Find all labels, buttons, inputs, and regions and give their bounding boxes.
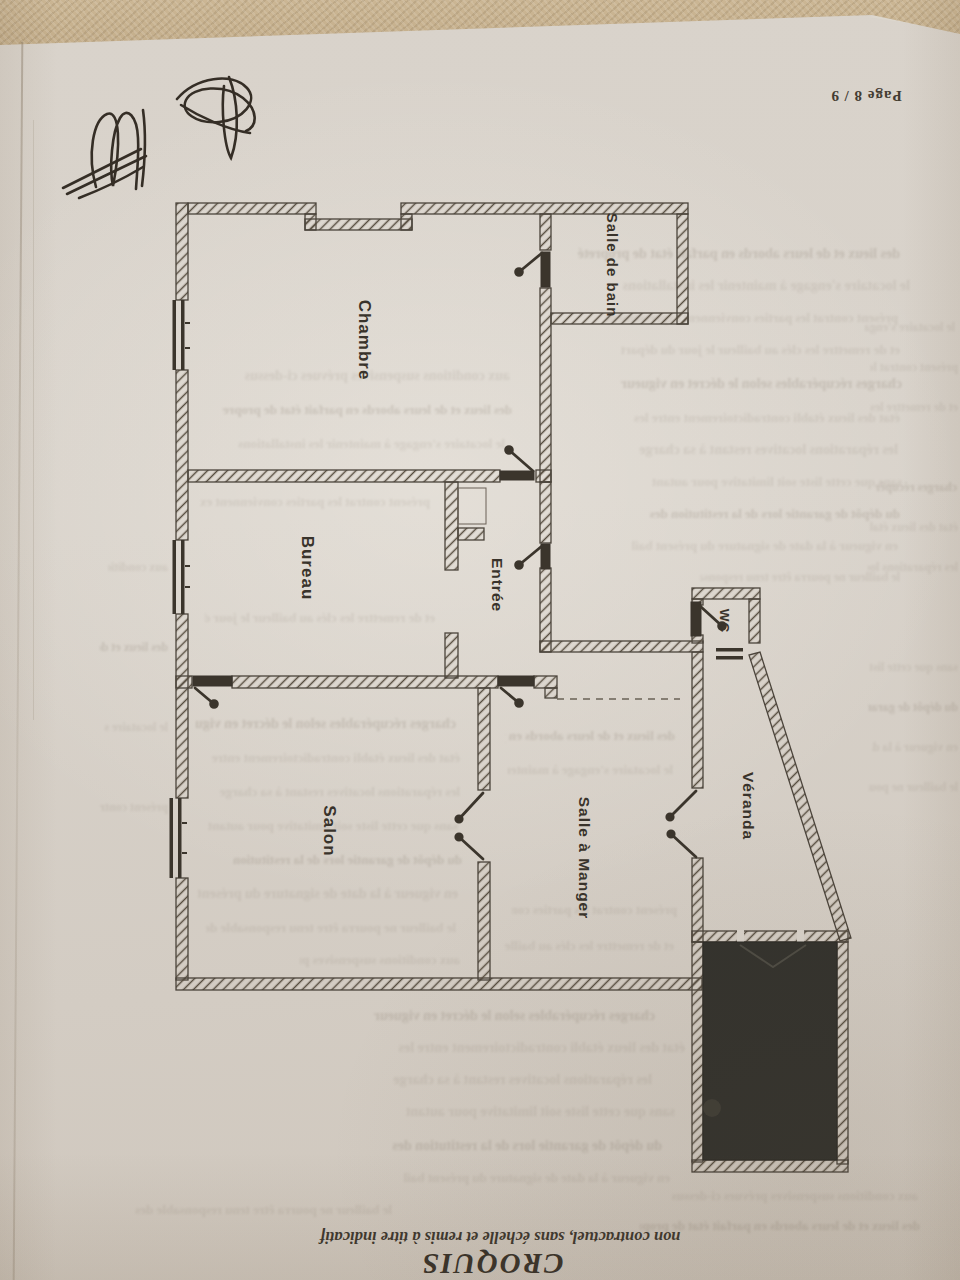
room-label-entree: Entrée — [488, 558, 506, 612]
room-label-chambre: Chambre — [354, 300, 374, 381]
footer-disclaimer: non contractuel, sans échelle et remis à… — [320, 1227, 681, 1247]
paper-crease — [33, 120, 34, 720]
room-label-veranda: Véranda — [739, 772, 757, 840]
room-label-salon: Salon — [319, 805, 339, 856]
room-label-wc: WC — [717, 609, 732, 634]
dark-filled-room — [703, 942, 837, 1160]
room-label-salle-de-bain: Salle de bain — [604, 213, 621, 318]
room-label-bureau: Bureau — [297, 536, 317, 601]
footer-title: CROQUIS — [421, 1247, 564, 1280]
closet-shelf-outline — [458, 488, 486, 524]
photographed-document-page: des lieux et de leurs abords en parfait … — [0, 0, 960, 1280]
window-symbols — [170, 300, 744, 878]
page-number: Page 8 / 9 — [830, 87, 901, 104]
room-label-salle-a-manger: Salle à Manger — [575, 797, 593, 920]
door-swing-leaves — [195, 253, 725, 859]
